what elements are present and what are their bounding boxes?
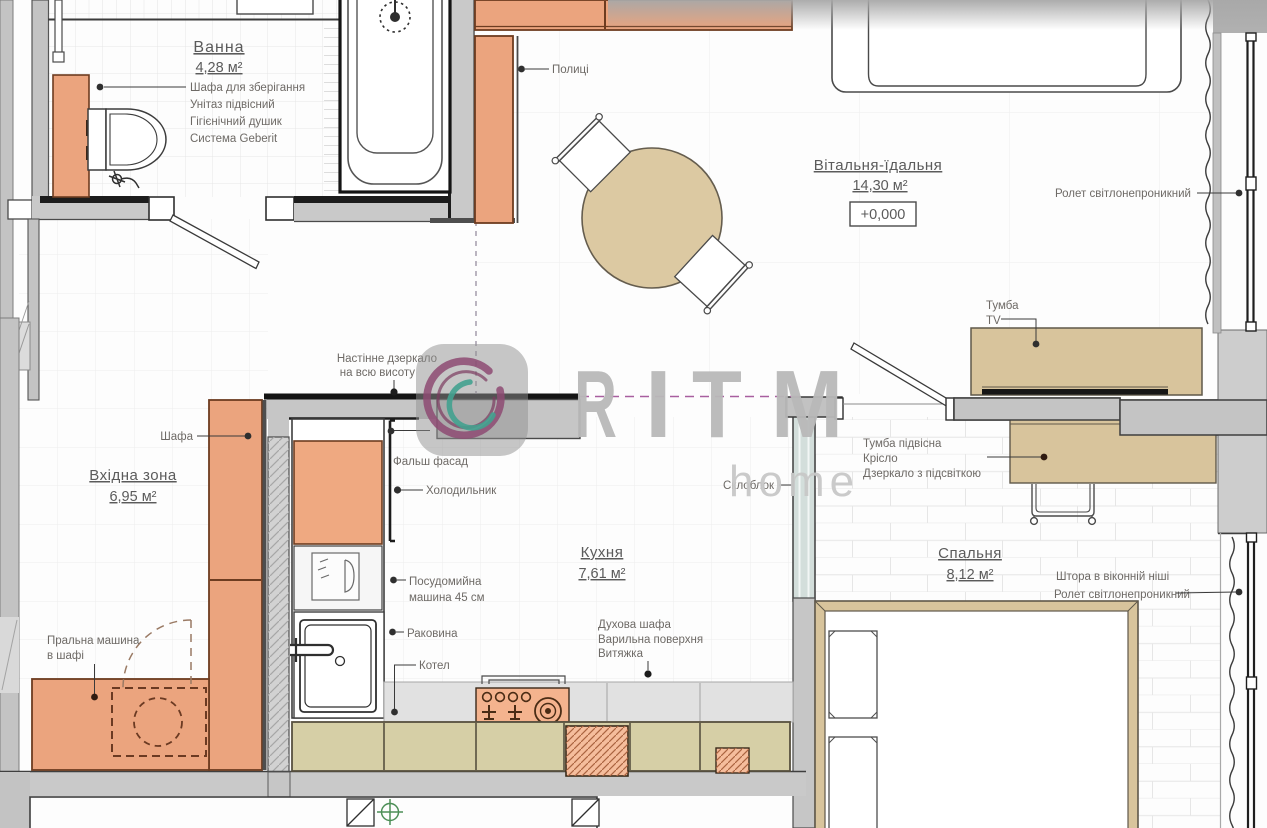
svg-text:Шафа для зберігання: Шафа для зберігання (190, 82, 305, 94)
svg-text:Спальня: Спальня (938, 545, 1002, 562)
svg-text:Гігієнічний душик: Гігієнічний душик (190, 116, 283, 128)
svg-text:I: I (645, 351, 672, 458)
svg-text:Кухня: Кухня (581, 544, 624, 561)
svg-text:14,30 м²: 14,30 м² (852, 178, 907, 194)
svg-text:Полиці: Полиці (552, 64, 589, 76)
svg-text:Вітальня-їдальня: Вітальня-їдальня (814, 157, 943, 174)
svg-text:Духова шафа: Духова шафа (598, 619, 671, 631)
svg-text:M: M (771, 351, 843, 458)
svg-text:6,95 м²: 6,95 м² (109, 489, 156, 505)
svg-text:Ролет світлонепроникний: Ролет світлонепроникний (1054, 589, 1190, 601)
svg-text:TV: TV (986, 315, 1001, 327)
svg-text:на всю висоту: на всю висоту (340, 367, 415, 379)
svg-text:Котел: Котел (419, 660, 450, 672)
svg-text:+0,000: +0,000 (861, 207, 906, 223)
svg-text:8,12 м²: 8,12 м² (946, 567, 993, 583)
svg-text:Вхідна зона: Вхідна зона (89, 467, 177, 484)
svg-text:Крісло: Крісло (863, 453, 898, 465)
svg-text:Раковина: Раковина (407, 628, 458, 640)
svg-text:Посудомийна: Посудомийна (409, 576, 482, 588)
svg-text:T: T (692, 350, 742, 458)
svg-text:Пральна машина: Пральна машина (47, 635, 140, 647)
svg-text:Ролет світлонепроникний: Ролет світлонепроникний (1055, 188, 1191, 200)
svg-text:машина 45 см: машина 45 см (409, 592, 485, 604)
svg-text:home: home (729, 457, 859, 506)
svg-text:Фальш фасад: Фальш фасад (393, 456, 468, 468)
svg-text:Штора в віконній ніші: Штора в віконній ніші (1056, 571, 1169, 583)
svg-text:Дзеркало з підсвіткою: Дзеркало з підсвіткою (863, 468, 981, 480)
svg-text:Тумба підвісна: Тумба підвісна (863, 438, 942, 450)
svg-text:Холодильник: Холодильник (426, 485, 497, 497)
svg-text:4,28 м²: 4,28 м² (195, 60, 242, 76)
svg-text:Унітаз підвісний: Унітаз підвісний (190, 99, 275, 111)
svg-text:7,61 м²: 7,61 м² (578, 566, 625, 582)
svg-text:Варильна поверхня: Варильна поверхня (598, 634, 703, 646)
svg-text:в шафі: в шафі (47, 650, 84, 662)
svg-text:Ванна: Ванна (193, 39, 244, 56)
svg-text:Система Geberit: Система Geberit (190, 133, 278, 145)
svg-text:Тумба: Тумба (986, 300, 1019, 312)
svg-text:R: R (574, 350, 617, 457)
svg-text:Шафа: Шафа (160, 431, 193, 443)
svg-text:Витяжка: Витяжка (598, 648, 644, 660)
